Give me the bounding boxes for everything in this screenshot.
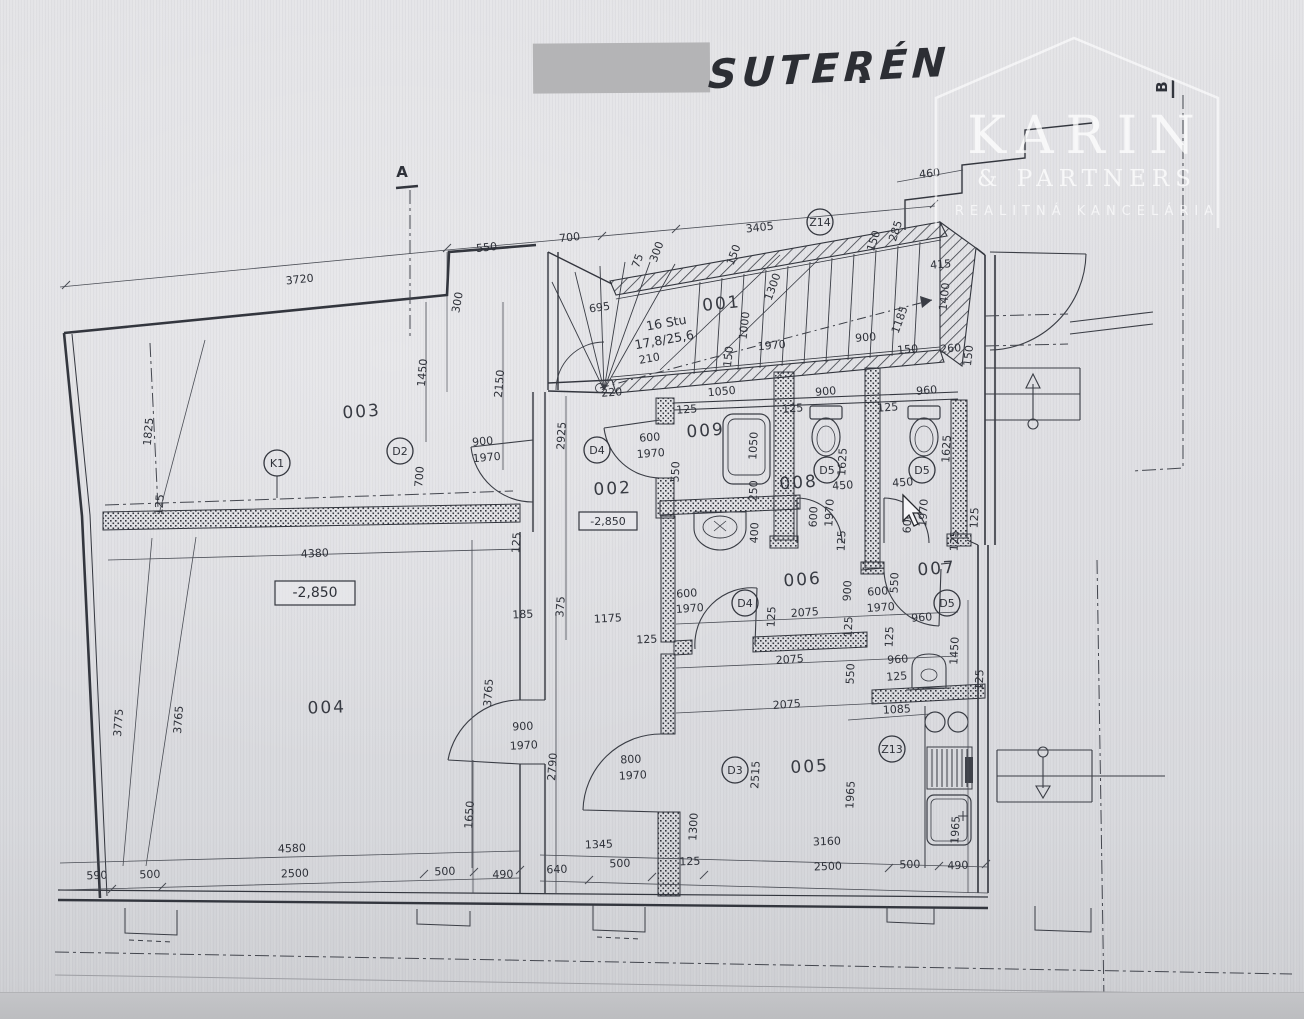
door-tag-text: D5 [914, 464, 929, 477]
dimension-label: 2790 [545, 752, 560, 781]
stove-burners [925, 712, 968, 732]
dimension-label: 125 [947, 530, 961, 552]
dimension-label: 150 [864, 229, 883, 253]
dimension-label: 1650 [462, 800, 477, 829]
dimension-label: 300 [647, 240, 666, 264]
dimension-label: 1185 [889, 304, 911, 335]
dimension-label: 260 [940, 341, 962, 356]
photo-bottom-edge [0, 992, 1304, 1019]
dimension-label: 960 [911, 610, 933, 624]
dimension-label: 3720 [285, 272, 314, 288]
dimension-label: 150 [961, 345, 976, 367]
dimension-label: 600 [676, 586, 698, 600]
dimension-label: 700 [559, 230, 581, 245]
floor-plan-photo: 3720550700340546030075150285150130041514… [0, 0, 1304, 1019]
room-number-label: 004 [307, 697, 346, 718]
door-tag-text: D5 [939, 597, 954, 610]
section-marker-b: B [1153, 81, 1171, 92]
dimension-label: 125 [834, 530, 848, 552]
dimension-label: 500 [139, 868, 160, 882]
dimension-label: 125 [152, 494, 167, 516]
dimension-label: 2075 [775, 652, 804, 667]
dimension-label: 3765 [481, 678, 496, 707]
door-tag-text: Z13 [881, 743, 903, 756]
room-number-label: 005 [790, 756, 829, 778]
door-tag-text: Z14 [809, 216, 831, 229]
dimension-label: 640 [546, 863, 567, 877]
dimension-label: 700 [412, 466, 427, 488]
door-tag-d4: D4 [732, 590, 758, 616]
dimension-label: 4580 [278, 842, 306, 856]
dimension-label: 150 [897, 342, 919, 357]
urinal [906, 654, 951, 690]
stair-note-label: 17,8/25,6 [633, 327, 695, 352]
dimension-label: 490 [492, 868, 513, 882]
floor-plan-drawing: 3720550700340546030075150285150130041514… [0, 0, 1304, 1019]
dimension-label: 460 [919, 166, 941, 181]
elevation-box: -2,850 [579, 512, 637, 530]
dimension-label: 2515 [748, 760, 762, 789]
dimension-label: 125 [886, 669, 908, 683]
door-tag-text: D3 [727, 764, 742, 777]
dimension-label: 900 [512, 719, 534, 733]
dimension-label: 1345 [585, 838, 613, 852]
dimension-label: 960 [887, 652, 909, 666]
section-marker-a: A [396, 163, 408, 181]
door-tag-z13: Z13 [879, 736, 905, 762]
steps-down [997, 747, 1165, 802]
door-tag-text: D4 [589, 444, 604, 457]
elevation-value: -2,850 [292, 585, 337, 601]
dimension-label: 125 [877, 400, 899, 414]
dimension-label: 1050 [707, 384, 736, 399]
room-number-label: 009 [686, 420, 726, 443]
dimension-label: 2925 [554, 421, 568, 450]
dimension-label: 1825 [141, 417, 156, 446]
dimension-label: 590 [86, 869, 107, 883]
dimension-label: 490 [947, 859, 968, 873]
dimension-label: 3765 [171, 705, 186, 734]
dimension-label: 1300 [762, 271, 784, 302]
door-tag-d2: D2 [387, 438, 413, 464]
dimension-label: 1175 [593, 611, 622, 625]
dimension-label: 1050 [746, 431, 760, 460]
dimension-label: 1970 [509, 738, 538, 752]
dimension-label: 250 [746, 480, 760, 502]
dimension-label: 125 [882, 626, 896, 648]
room-number-label: 006 [783, 569, 823, 592]
dimension-label: 1970 [675, 601, 704, 616]
redacted-label [533, 42, 710, 93]
dimension-label: 1970 [822, 498, 836, 527]
dimension-label: 900 [472, 434, 494, 449]
stair-note: 16 Stu17,8/25,6 [633, 312, 695, 353]
dimension-label: 300 [449, 291, 465, 314]
dimension-label: 75 [629, 252, 646, 270]
dimension-label: 550 [887, 572, 901, 594]
dimension-label: 500 [609, 857, 630, 871]
dimension-label: 4380 [300, 546, 329, 560]
washbasin [694, 512, 746, 550]
dimension-label: 1970 [636, 446, 665, 461]
dimension-label: 900 [815, 384, 837, 399]
dimension-label: 125 [972, 669, 986, 691]
door-tag-d4: D4 [584, 437, 610, 463]
dimension-label: 125 [764, 606, 778, 628]
dimension-label: 1970 [472, 450, 501, 465]
door-tag-d5: D5 [909, 457, 935, 483]
room-number-label: 001 [701, 292, 741, 316]
dimension-label: 375 [553, 596, 567, 618]
dimension-label: 900 [840, 580, 854, 602]
door-tag-text: D4 [737, 597, 752, 610]
room-number-label: 008 [779, 472, 819, 495]
dimension-label: 210 [638, 350, 661, 366]
door-tag-text: K1 [270, 457, 284, 470]
section-markers: AB [396, 81, 1171, 181]
dimension-label: 1625 [939, 434, 953, 463]
room-number-label: 003 [342, 401, 382, 424]
door-tag-z14: Z14 [807, 209, 833, 235]
dimension-label: 600 [806, 506, 820, 528]
toilet [908, 406, 940, 456]
dimension-label: 1300 [686, 812, 700, 841]
dimension-label: 550 [843, 663, 857, 685]
dimension-label: 185 [512, 607, 534, 621]
dimension-label: 600 [867, 584, 889, 598]
dimension-label: 2075 [772, 697, 801, 712]
dimension-label: 125 [841, 616, 855, 638]
dimension-label: 125 [636, 632, 658, 646]
radiator [927, 747, 973, 789]
door-tag-d3: D3 [722, 757, 748, 783]
dimension-label: 125 [967, 507, 981, 529]
dimension-label: 960 [916, 383, 938, 398]
dimension-label: 1450 [947, 636, 961, 665]
door-tag-k1: K1 [264, 450, 290, 476]
dimension-label: 800 [620, 752, 642, 766]
dimension-label: 2075 [790, 605, 819, 620]
dimension-label: 450 [892, 475, 914, 489]
dimension-label: 150 [721, 346, 736, 368]
dimension-label: 2500 [281, 867, 309, 881]
dimension-label: 125 [679, 855, 700, 869]
entry-steps-up [985, 312, 1153, 429]
dimension-label: 695 [588, 300, 611, 316]
room-number-label: 007 [917, 558, 957, 581]
dimension-label: 550 [476, 240, 498, 255]
dimension-label: 1970 [757, 338, 786, 353]
dimension-label: 900 [855, 330, 877, 345]
dimension-label: 3160 [813, 835, 841, 849]
dimension-label: 125 [782, 401, 804, 415]
dimension-label: 1965 [843, 780, 857, 809]
dimension-label: 600 [639, 430, 661, 444]
dimension-label: 2500 [814, 860, 842, 874]
dimension-label: 3405 [745, 220, 774, 236]
handwritten-dot: . [856, 52, 869, 92]
dimension-label: 1450 [415, 358, 430, 387]
dimension-label: 1970 [866, 600, 895, 615]
door-tag-text: D2 [392, 445, 407, 458]
dimension-label: 415 [930, 257, 952, 272]
dimension-label: 500 [899, 858, 920, 872]
dimension-label: 550 [668, 461, 682, 483]
elevation-box: -2,850 [275, 581, 355, 605]
elevation-value: -2,850 [590, 515, 625, 528]
room-number-label: 002 [593, 478, 632, 500]
dimension-label: 125 [509, 532, 523, 554]
dimension-label: 1970 [618, 768, 647, 782]
dimension-label: 1000 [737, 311, 753, 340]
door-tag-text: D5 [819, 464, 834, 477]
dimension-label: 1085 [882, 702, 911, 716]
dimension-label: 500 [434, 865, 455, 879]
dimension-label: 220 [601, 385, 623, 399]
doors [448, 252, 1086, 812]
dimension-label: 3775 [111, 708, 126, 737]
foundation-pillars [125, 905, 1091, 942]
section-a-flag [396, 186, 418, 188]
dimension-label: 400 [747, 522, 761, 544]
dimension-label: 125 [676, 402, 698, 416]
dimension-label: 1965 [948, 815, 962, 844]
dimension-label: 2150 [492, 369, 507, 398]
